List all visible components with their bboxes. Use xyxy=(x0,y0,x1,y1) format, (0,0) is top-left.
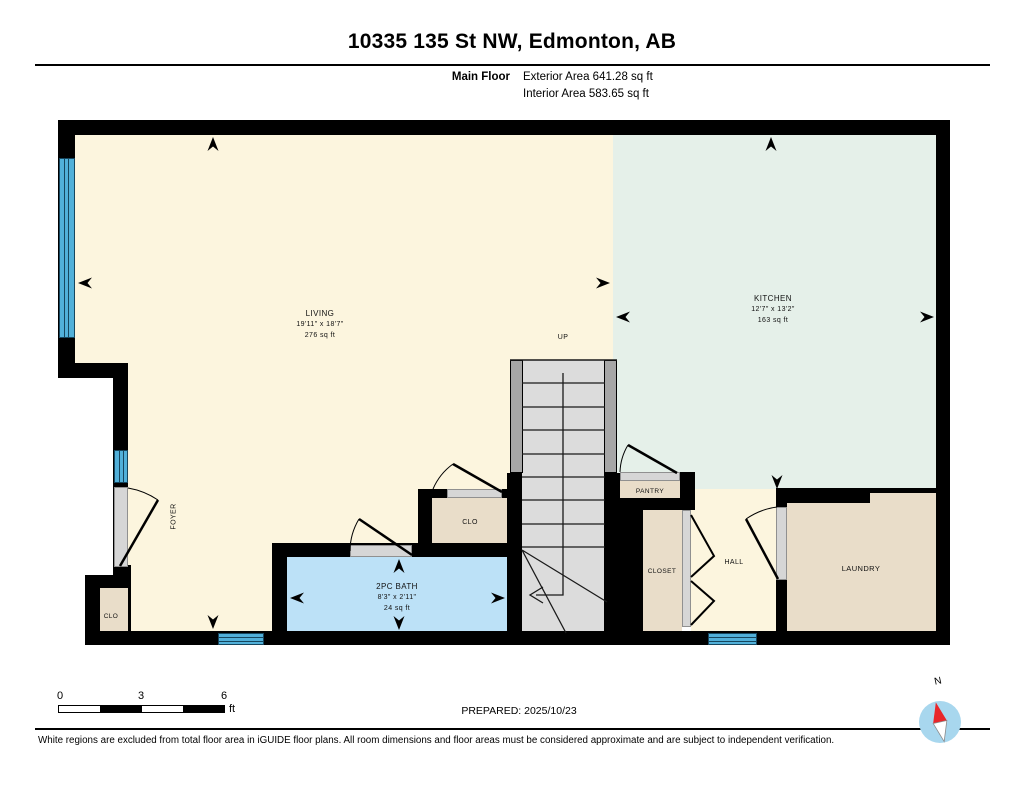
front-door-opening xyxy=(114,487,128,567)
foyer-label: FOYER xyxy=(169,489,180,545)
living-room-area xyxy=(75,135,613,378)
window-bottom-hall xyxy=(708,633,757,645)
wall-laundry-corner xyxy=(776,488,787,507)
compass-icon xyxy=(919,701,961,743)
bath-door-opening xyxy=(350,545,412,557)
entry-closet-area xyxy=(100,588,131,631)
laundry-label: LAUNDRY xyxy=(801,563,921,574)
prepared-date: PREPARED: 2025/10/23 xyxy=(369,705,669,717)
wall-clo-top-a xyxy=(432,489,447,498)
stair-treads xyxy=(522,360,605,631)
scale-tick-6: 6 xyxy=(214,690,234,702)
entry-closet-label: CLO xyxy=(81,611,141,622)
wall-laundry-left xyxy=(776,580,787,631)
scale-unit-label: ft xyxy=(229,703,235,715)
exterior-area: Exterior Area 641.28 sq ft xyxy=(523,71,653,83)
pantry-label: PANTRY xyxy=(620,486,680,497)
kitchen-label: KITCHEN 12'7" x 13'2" 163 sq ft xyxy=(693,293,853,326)
mid-closet-label: CLO xyxy=(440,517,500,528)
stairs-up-label: UP xyxy=(543,332,583,343)
laundry-door-opening xyxy=(776,507,787,580)
laundry-area-step xyxy=(870,493,936,503)
floor-plan-page: 10335 135 St NW, Edmonton, AB Main Floor… xyxy=(0,0,1024,791)
compass-north-label: N xyxy=(925,674,951,690)
wall-stairs-left xyxy=(507,473,522,631)
wall-laundry-top-b xyxy=(870,488,936,493)
footer-divider xyxy=(35,728,990,730)
wall-entry-closet xyxy=(128,588,131,631)
window-living-left xyxy=(59,158,75,338)
wall-right xyxy=(936,120,950,645)
wall-clo-left xyxy=(418,489,432,557)
bath-label: 2PC BATH 8'3" x 2'11" 24 sq ft xyxy=(317,581,477,614)
scale-bar xyxy=(58,705,225,713)
scale-tick-3: 3 xyxy=(131,690,151,702)
scale-tick-0: 0 xyxy=(50,690,70,702)
stair-stringer-left xyxy=(510,360,523,473)
wall-top xyxy=(58,120,950,135)
mid-closet-door-opening xyxy=(447,489,502,498)
pantry-door-opening xyxy=(620,472,680,481)
wall-below-pantry xyxy=(618,498,695,510)
wall-notch xyxy=(58,363,128,378)
window-bottom-living xyxy=(218,633,264,645)
wall-laundry-top-a xyxy=(787,488,870,503)
disclaimer-text: White regions are excluded from total fl… xyxy=(38,735,998,746)
hall-label: HALL xyxy=(704,557,764,568)
window-foyer xyxy=(114,450,128,483)
wall-bottom xyxy=(85,631,950,645)
header-divider xyxy=(35,64,990,66)
wall-stairs-right xyxy=(604,473,620,631)
interior-area: Interior Area 583.65 sq ft xyxy=(523,88,649,100)
page-title: 10335 135 St NW, Edmonton, AB xyxy=(0,30,1024,54)
hall-closet-label: CLOSET xyxy=(632,566,692,577)
floor-label: Main Floor xyxy=(360,71,510,83)
living-label: LIVING 19'11" x 18'7" 276 sq ft xyxy=(240,308,400,341)
stair-stringer-right xyxy=(604,360,617,473)
